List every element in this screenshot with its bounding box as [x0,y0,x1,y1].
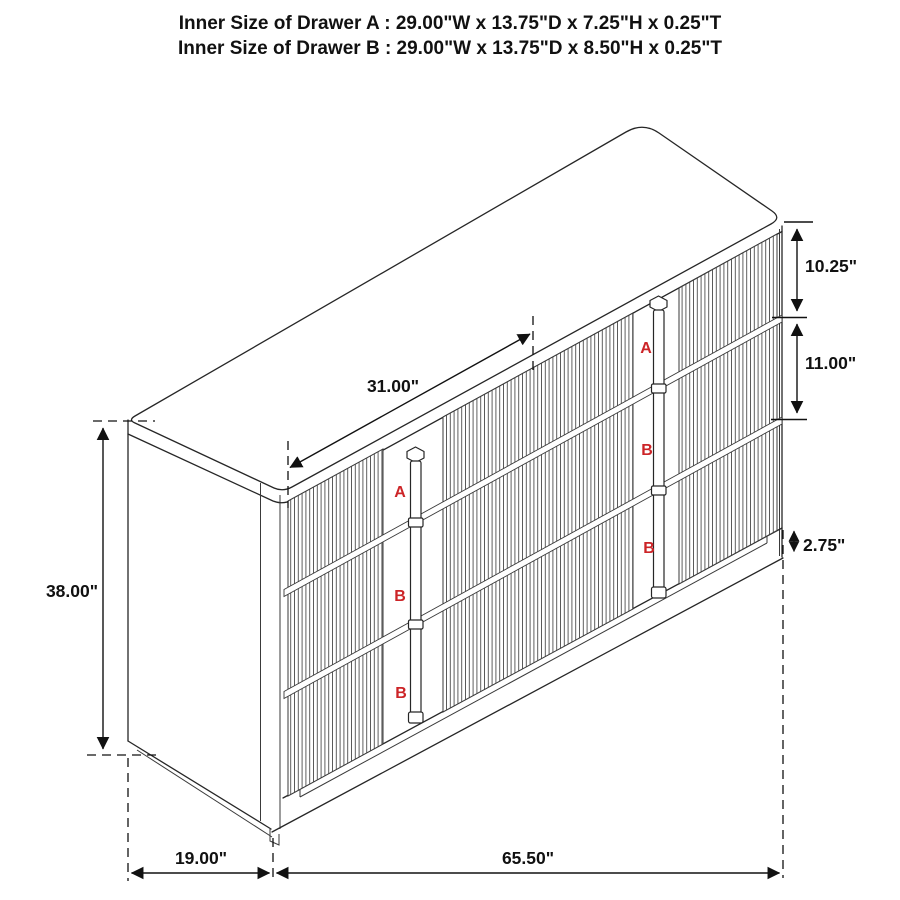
fluted-panel-center [443,313,633,712]
dresser-dimension-diagram: Inner Size of Drawer A : 29.00"W x 13.75… [0,0,900,900]
fluted-panel-left [288,449,383,796]
fluted-panel-right [679,234,777,584]
handle-collar [652,384,667,393]
handle-collar [409,518,424,527]
dimension-drawer-a-height: 10.25" [772,222,857,318]
drawer-handle-left [407,447,424,723]
handle-collar [409,620,424,629]
page-root: Inner Size of Drawer A : 29.00"W x 13.75… [0,0,900,900]
dimension-base-height: 2.75" [783,530,845,878]
dimension-drawer-a-label: 10.25" [805,256,857,276]
title-line-2: Inner Size of Drawer B : 29.00"W x 13.75… [178,38,722,59]
handle-collar [652,486,667,495]
cabinet-outline: A B B A B B [128,127,783,845]
handle-top-cap [407,447,424,463]
dimension-drawer-b-label: 11.00" [805,353,856,373]
handle-top-cap [650,296,667,312]
handle-bottom-cap [652,587,667,598]
dimension-drawer-b-height: 11.00" [771,324,856,420]
dimension-width-label: 65.50" [502,848,554,868]
handle-bar [411,461,422,717]
dimension-depth-label: 19.00" [175,848,227,868]
dimension-width-65: 65.50" [277,848,780,873]
drawer-label-right-a: A [640,340,652,357]
drawer-label-left-a: A [394,484,406,501]
dimension-height-38: 38.00" [46,421,160,755]
dimension-height-label: 38.00" [46,581,98,601]
handle-bar [654,310,665,592]
side-panel [128,420,280,845]
dimension-base-label: 2.75" [803,535,845,555]
drawer-label-right-b2: B [643,540,655,557]
title-line-1: Inner Size of Drawer A : 29.00"W x 13.75… [179,13,722,34]
drawer-label-right-b1: B [641,442,653,459]
dimension-diagonal-label: 31.00" [367,376,419,396]
handle-bottom-cap [409,712,424,723]
drawer-label-left-b1: B [394,588,406,605]
drawer-label-left-b2: B [395,685,407,702]
dimension-depth-19: 19.00" [128,758,273,881]
